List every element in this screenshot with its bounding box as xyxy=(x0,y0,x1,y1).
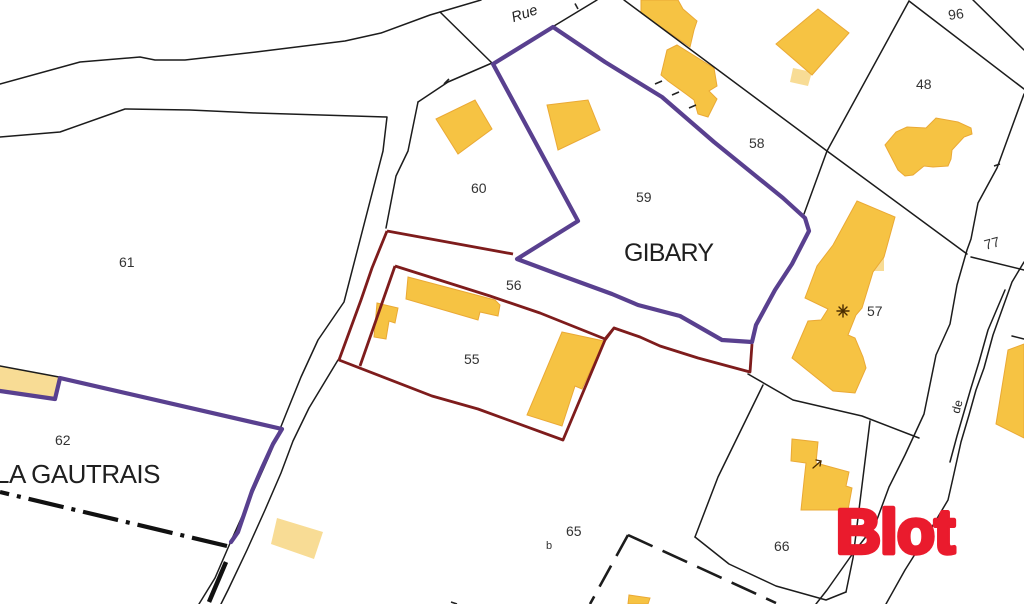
svg-text:66: 66 xyxy=(774,538,790,554)
svg-text:55: 55 xyxy=(464,351,480,367)
svg-text:62: 62 xyxy=(55,432,71,448)
svg-text:58: 58 xyxy=(749,135,765,151)
svg-text:48: 48 xyxy=(916,76,932,92)
svg-text:65: 65 xyxy=(566,523,582,539)
svg-text:60: 60 xyxy=(471,180,487,196)
svg-text:b: b xyxy=(546,540,552,552)
svg-text:LA GAUTRAIS: LA GAUTRAIS xyxy=(0,459,160,489)
svg-text:59: 59 xyxy=(636,189,652,205)
svg-text:Blot: Blot xyxy=(836,498,955,567)
svg-text:61: 61 xyxy=(119,254,135,270)
svg-text:56: 56 xyxy=(506,277,522,293)
svg-text:GIBARY: GIBARY xyxy=(624,239,714,267)
svg-text:96: 96 xyxy=(947,5,965,23)
svg-text:57: 57 xyxy=(867,303,883,319)
